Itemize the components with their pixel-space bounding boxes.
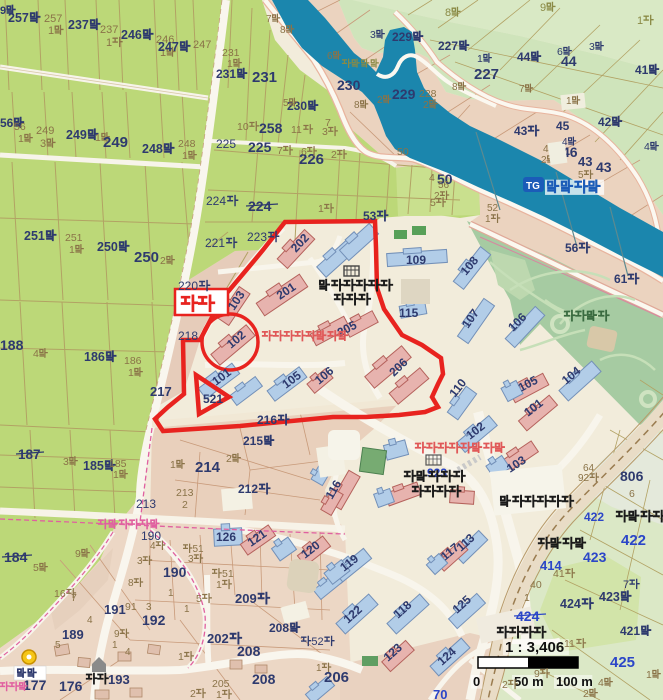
svg-text:8: 8 [128, 578, 134, 589]
svg-text:1: 1 [524, 592, 530, 604]
svg-text:214: 214 [195, 459, 221, 476]
svg-text:5: 5 [55, 640, 61, 651]
svg-text:1: 1 [566, 96, 572, 107]
svg-text:40: 40 [530, 579, 542, 591]
svg-text:424: 424 [516, 608, 540, 624]
svg-text:6: 6 [629, 488, 635, 500]
svg-text:11: 11 [291, 124, 302, 136]
svg-text:4: 4 [125, 647, 131, 658]
svg-text:223: 223 [247, 230, 267, 244]
svg-text:231: 231 [252, 69, 277, 86]
svg-text:126: 126 [216, 530, 236, 544]
svg-text:237: 237 [68, 18, 89, 32]
svg-text:521: 521 [203, 392, 223, 406]
svg-text:8: 8 [445, 7, 451, 19]
svg-text:1: 1 [646, 669, 652, 681]
svg-text:56: 56 [0, 116, 14, 130]
svg-text:42: 42 [598, 115, 612, 129]
svg-text:1 : 3,406: 1 : 3,406 [505, 639, 564, 656]
svg-text:4: 4 [644, 141, 650, 153]
svg-text:115: 115 [399, 306, 419, 320]
svg-text:190: 190 [163, 564, 187, 580]
svg-text:52: 52 [487, 203, 499, 214]
svg-text:1: 1 [178, 651, 184, 663]
svg-text:1: 1 [69, 244, 75, 256]
svg-text:4: 4 [562, 137, 568, 148]
svg-text:16: 16 [54, 588, 66, 600]
svg-text:TG: TG [526, 181, 540, 192]
svg-text:2: 2 [190, 688, 196, 700]
svg-text:247: 247 [158, 40, 179, 54]
svg-text:246: 246 [121, 28, 142, 42]
svg-text:2: 2 [583, 688, 589, 700]
svg-text:52: 52 [311, 636, 323, 648]
svg-text:3: 3 [188, 554, 194, 565]
svg-text:2: 2 [377, 95, 383, 106]
svg-text:2: 2 [182, 499, 188, 511]
svg-text:1: 1 [168, 588, 174, 599]
svg-text:217: 217 [150, 384, 172, 399]
svg-text:422: 422 [621, 532, 646, 549]
svg-text:1: 1 [182, 150, 188, 162]
svg-text:9: 9 [0, 5, 6, 17]
svg-text:193: 193 [108, 672, 130, 687]
svg-text:7: 7 [325, 117, 331, 129]
svg-text:91: 91 [125, 601, 137, 613]
svg-text:247: 247 [193, 39, 211, 51]
svg-text:7: 7 [277, 145, 283, 157]
svg-text:189: 189 [62, 627, 84, 642]
svg-text:4: 4 [598, 677, 604, 689]
svg-text:231: 231 [216, 67, 236, 81]
svg-text:421: 421 [620, 624, 640, 638]
svg-text:209: 209 [235, 591, 257, 606]
svg-text:248: 248 [142, 142, 163, 156]
svg-text:43: 43 [578, 154, 592, 169]
svg-text:1: 1 [106, 37, 112, 49]
svg-text:192: 192 [142, 612, 166, 628]
svg-text:188: 188 [0, 337, 24, 353]
svg-text:186: 186 [124, 355, 142, 367]
svg-text:50: 50 [397, 146, 409, 158]
svg-text:221: 221 [205, 236, 225, 250]
svg-text:56: 56 [565, 241, 579, 255]
svg-text:8: 8 [280, 25, 286, 36]
svg-text:7: 7 [266, 14, 272, 25]
svg-text:1: 1 [95, 132, 101, 144]
svg-text:225: 225 [216, 137, 236, 151]
svg-text:212: 212 [238, 482, 258, 496]
svg-text:422: 422 [584, 510, 604, 524]
svg-text:7: 7 [519, 84, 525, 95]
svg-text:1: 1 [216, 579, 222, 591]
svg-text:249: 249 [66, 128, 87, 142]
svg-text:186: 186 [84, 350, 105, 364]
svg-text:8: 8 [452, 82, 458, 93]
svg-text:51: 51 [193, 544, 205, 555]
svg-text:4: 4 [33, 348, 39, 360]
svg-text:2: 2 [331, 149, 337, 161]
svg-text:2: 2 [502, 679, 508, 691]
svg-text:1: 1 [485, 214, 491, 225]
svg-text:3: 3 [137, 556, 143, 567]
svg-text:9: 9 [534, 668, 540, 680]
svg-text:1: 1 [128, 367, 134, 379]
svg-text:7: 7 [623, 579, 629, 591]
svg-text:51: 51 [222, 568, 234, 580]
svg-text:41: 41 [553, 568, 565, 580]
svg-text:218: 218 [178, 329, 198, 343]
svg-text:9: 9 [540, 2, 546, 14]
svg-text:56: 56 [14, 121, 26, 133]
svg-text:2: 2 [434, 191, 440, 202]
svg-text:3: 3 [589, 41, 595, 53]
svg-text:5: 5 [578, 170, 584, 181]
svg-text:6: 6 [301, 146, 307, 158]
svg-text:187: 187 [18, 447, 41, 462]
svg-text:229: 229 [392, 30, 412, 44]
svg-text:424: 424 [560, 597, 581, 611]
svg-text:202: 202 [207, 631, 229, 646]
svg-text:1: 1 [112, 640, 118, 651]
svg-text:5: 5 [33, 562, 39, 574]
svg-text:41: 41 [635, 63, 649, 77]
svg-text:250: 250 [134, 249, 159, 266]
svg-text:177: 177 [23, 677, 47, 693]
svg-text:423: 423 [599, 590, 620, 604]
svg-text:208: 208 [252, 671, 276, 687]
svg-text:9: 9 [114, 629, 120, 640]
svg-text:220: 220 [178, 279, 198, 293]
svg-text:2: 2 [226, 453, 232, 465]
svg-text:1: 1 [316, 663, 322, 674]
svg-text:251: 251 [24, 229, 45, 243]
svg-text:9: 9 [75, 548, 81, 560]
svg-text:70: 70 [433, 687, 447, 700]
svg-text:258: 258 [259, 120, 283, 136]
svg-text:1: 1 [170, 459, 176, 471]
svg-text:4: 4 [429, 172, 435, 184]
svg-text:208: 208 [269, 621, 289, 635]
svg-text:1: 1 [318, 203, 324, 215]
svg-text:92: 92 [578, 473, 590, 484]
svg-text:11: 11 [564, 638, 575, 650]
svg-text:0: 0 [473, 674, 480, 689]
svg-text:7: 7 [71, 592, 77, 604]
svg-text:213: 213 [136, 497, 156, 511]
svg-text:1: 1 [477, 53, 483, 65]
svg-text:5: 5 [283, 98, 289, 109]
svg-text:237: 237 [100, 24, 118, 36]
svg-text:44: 44 [561, 53, 577, 69]
svg-text:184: 184 [4, 549, 28, 565]
svg-text:1: 1 [637, 15, 643, 27]
svg-text:56: 56 [438, 180, 450, 191]
svg-text:1: 1 [48, 25, 54, 37]
svg-text:206: 206 [324, 669, 349, 686]
svg-text:1: 1 [113, 469, 119, 481]
svg-text:251: 251 [65, 232, 83, 244]
svg-text:224: 224 [206, 194, 226, 208]
svg-text:43: 43 [514, 124, 528, 138]
svg-text:216: 216 [257, 413, 277, 427]
svg-text:229: 229 [392, 86, 416, 102]
svg-text:109: 109 [406, 253, 426, 267]
svg-text:225: 225 [248, 139, 272, 155]
svg-text:100 m: 100 m [556, 674, 593, 689]
svg-text:1: 1 [184, 604, 190, 615]
svg-text:425: 425 [610, 654, 635, 671]
svg-text:45: 45 [556, 119, 570, 133]
svg-text:3: 3 [63, 456, 69, 468]
svg-text:4: 4 [150, 541, 156, 552]
svg-text:3: 3 [40, 138, 46, 150]
svg-text:5: 5 [196, 593, 202, 605]
svg-text:61: 61 [614, 272, 628, 286]
svg-text:2: 2 [423, 99, 429, 111]
svg-text:8: 8 [354, 100, 360, 111]
svg-text:191: 191 [104, 602, 126, 617]
svg-text:1: 1 [216, 689, 222, 700]
svg-text:2: 2 [541, 155, 547, 166]
svg-text:4: 4 [87, 615, 93, 626]
svg-text:248: 248 [178, 138, 196, 150]
svg-text:53: 53 [363, 209, 377, 223]
svg-text:185: 185 [83, 459, 104, 473]
svg-text:215: 215 [243, 434, 263, 448]
svg-text:213: 213 [176, 487, 194, 499]
svg-text:227: 227 [474, 66, 499, 83]
svg-text:806: 806 [620, 468, 644, 484]
svg-text:227: 227 [438, 39, 458, 53]
svg-text:10: 10 [237, 121, 249, 133]
svg-text:208: 208 [237, 643, 261, 659]
svg-text:176: 176 [59, 678, 83, 694]
svg-text:3: 3 [370, 29, 376, 41]
svg-text:1: 1 [18, 133, 24, 145]
svg-text:43: 43 [596, 159, 612, 175]
svg-text:2: 2 [160, 255, 166, 267]
svg-text:224: 224 [248, 198, 272, 214]
svg-text:6: 6 [327, 51, 333, 62]
svg-text:423: 423 [583, 549, 607, 565]
svg-text:230: 230 [337, 77, 361, 93]
svg-text:257: 257 [44, 13, 62, 25]
svg-text:249: 249 [103, 134, 128, 151]
svg-text:249: 249 [36, 125, 54, 137]
svg-text:250: 250 [97, 240, 118, 254]
svg-text:44: 44 [517, 50, 531, 64]
